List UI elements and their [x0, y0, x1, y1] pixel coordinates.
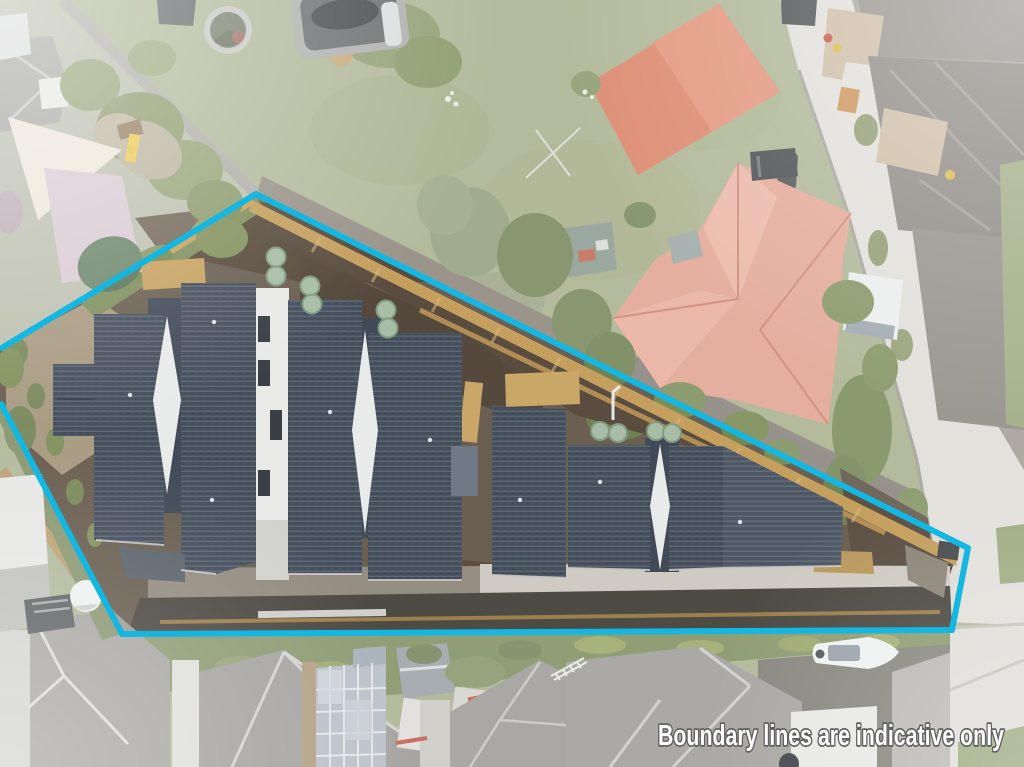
svg-text:Boundary lines are indicative: Boundary lines are indicative only [658, 720, 1004, 752]
